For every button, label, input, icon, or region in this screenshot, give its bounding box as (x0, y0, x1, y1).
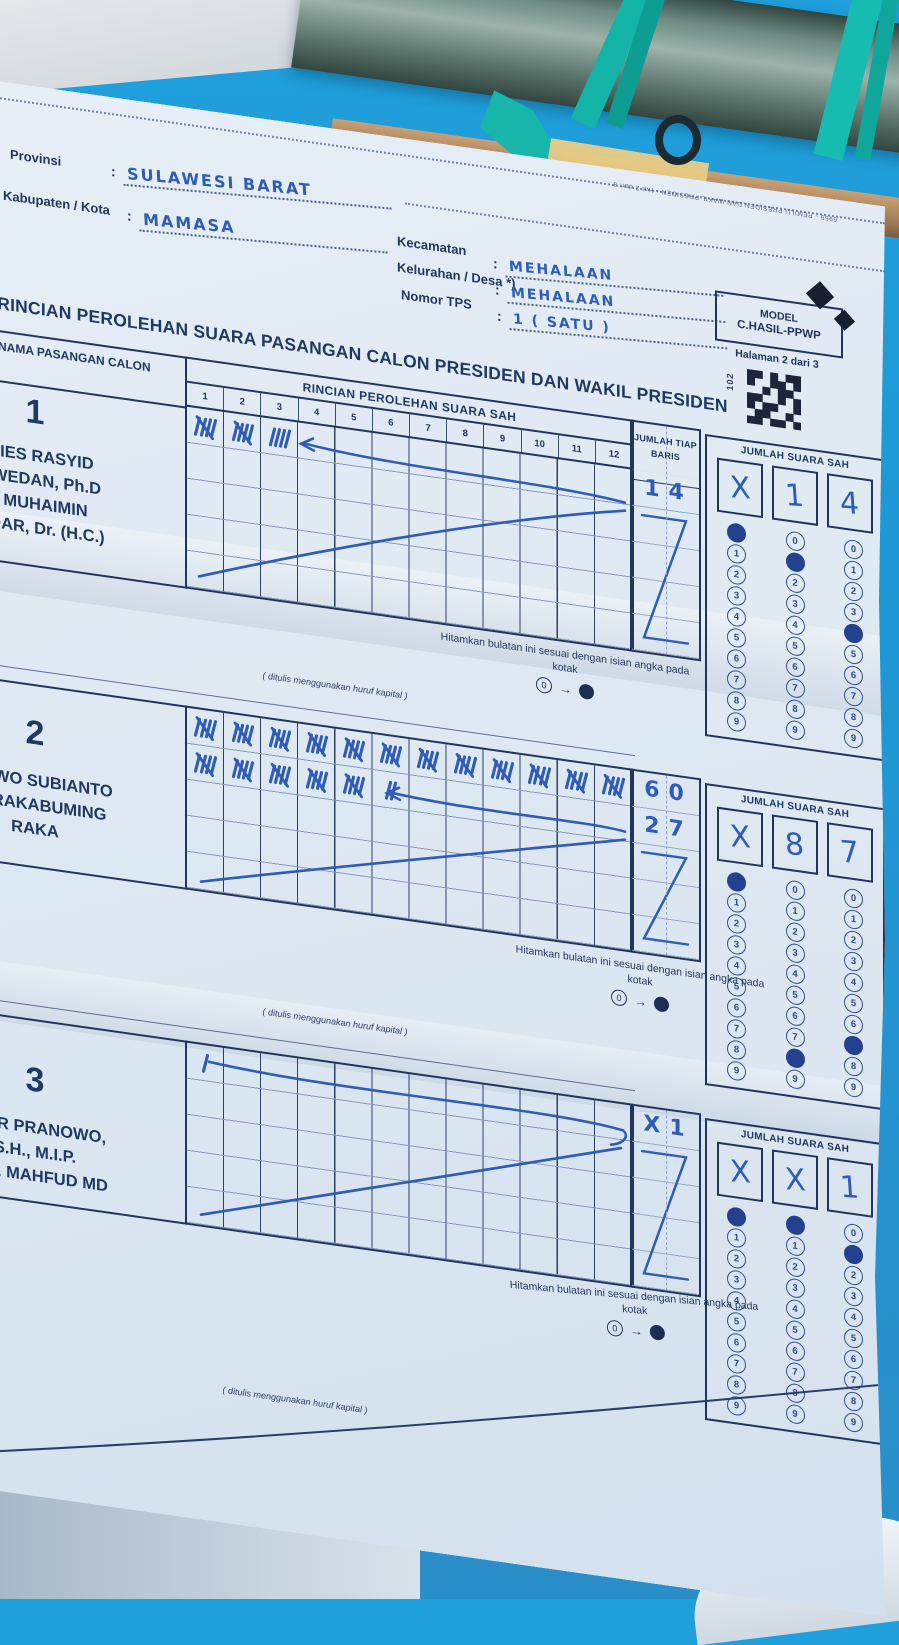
bubble-filled (786, 1047, 805, 1069)
candidate-cell: 2 ABOWO SUBIANTO AN RAKABUMING RAKA (0, 663, 187, 890)
bubble: 8 (786, 698, 805, 720)
bubble: 3 (786, 1277, 805, 1299)
bubble: 0 (844, 1223, 863, 1245)
tally-form-sheet: 6959 - PEMILU PRESIDEN DAN WAKIL PRESIDE… (0, 65, 885, 1616)
bubble: 0 (786, 879, 805, 901)
bubble: 4 (844, 972, 863, 994)
arrow-icon: → (629, 1322, 643, 1338)
field-value-kabupaten: MAMASA (139, 209, 388, 253)
bubble: 1 (844, 909, 863, 931)
caps-note: ( ditulis menggunakan huruf kapital ) (185, 995, 485, 1047)
bubble: 6 (786, 1340, 805, 1362)
bubble: 3 (786, 593, 805, 615)
bubble: 0 (786, 530, 805, 552)
bubble: 9 (844, 728, 863, 750)
field-value-provinsi: SULAWESI BARAT (123, 164, 392, 210)
bubble: 4 (727, 606, 746, 628)
candidate-cell: NOMOR DAN NAMA PASANGAN CALON 1 ANIES RA… (0, 314, 187, 589)
bubble: 8 (844, 1056, 863, 1078)
bubble: 9 (844, 1412, 863, 1434)
bubble: 2 (727, 1248, 746, 1270)
candidate-section-1: NOMOR DAN NAMA PASANGAN CALON 1 ANIES RA… (0, 314, 697, 657)
bubble: 7 (786, 677, 805, 699)
bubble: 8 (786, 1382, 805, 1404)
bubble: 2 (844, 581, 863, 603)
total-digit-box: X (717, 807, 763, 868)
bubble: 9 (786, 719, 805, 741)
bubble: 4 (786, 614, 805, 636)
bubble: 8 (844, 707, 863, 729)
colon: : (127, 207, 132, 224)
bubble: 9 (786, 1403, 805, 1425)
bubble: 5 (786, 984, 805, 1006)
bubble-filled (844, 1035, 863, 1057)
bubble: 7 (786, 1026, 805, 1048)
bubble: 8 (727, 1039, 746, 1061)
bubble: 5 (727, 627, 746, 649)
bubble: 3 (727, 585, 746, 607)
caps-note: ( ditulis menggunakan huruf kapital ) (145, 1374, 445, 1426)
bubble: 3 (786, 942, 805, 964)
filled-bubble-icon (579, 683, 594, 700)
candidate-number: 2 (0, 693, 185, 774)
row-total-column: JUMLAH TIAP BARIS 14 (630, 419, 701, 661)
candidate-section-3: 3 NJAR PRANOWO, S.H., M.I.P. H. M. MAHFU… (0, 998, 697, 1293)
arrow-icon: → (559, 680, 572, 697)
arrow-icon: → (634, 993, 647, 1010)
bubble: 6 (844, 665, 863, 687)
empty-bubble-icon: 0 (611, 989, 627, 1007)
bubble-filled (786, 551, 805, 573)
total-digit-box: X (717, 458, 763, 519)
bubble: 2 (727, 913, 746, 935)
bubble: 2 (786, 572, 805, 594)
bubble: 2 (786, 1256, 805, 1278)
bubble-filled (727, 871, 746, 893)
row-total-column: 6027 (630, 768, 701, 962)
field-label-kecamatan: Kecamatan (397, 233, 466, 258)
bubble: 1 (786, 1235, 805, 1257)
bubble: 2 (786, 921, 805, 943)
bubble: 3 (844, 602, 863, 624)
grommet-ring-icon (655, 115, 701, 165)
field-label-kabupaten: Kabupaten / Kota (3, 188, 110, 218)
crossout-zigzag (632, 1106, 699, 1295)
bubble: 3 (727, 1269, 746, 1291)
bubble: 6 (786, 656, 805, 678)
bubble: 9 (727, 711, 746, 733)
bubble: 4 (844, 1307, 863, 1329)
bubble: 5 (844, 993, 863, 1015)
bubble: 9 (844, 1077, 863, 1099)
bubble: 9 (727, 1395, 746, 1417)
bubble: 6 (786, 1005, 805, 1027)
bubble: 5 (844, 644, 863, 666)
bubble-filled (844, 1244, 863, 1266)
bubble: 3 (844, 1286, 863, 1308)
crossout-zigzag (632, 470, 699, 659)
bubble-grid: 001122233344555666777888999 (707, 518, 883, 753)
qr-side-number: 102 (725, 372, 735, 391)
bubble: 1 (786, 900, 805, 922)
bubble-filled (844, 623, 863, 645)
field-label-nomor-tps: Nomor TPS (401, 287, 472, 312)
candidate-cell: 3 NJAR PRANOWO, S.H., M.I.P. H. M. MAHFU… (0, 998, 187, 1225)
colon: : (493, 255, 498, 272)
filled-bubble-icon (649, 1324, 665, 1340)
bubble: 1 (727, 892, 746, 914)
valid-votes-panel-3: JUMLAH SUARA SAH XX1 0112223334445556667… (705, 1118, 885, 1445)
valid-votes-panel-2: JUMLAH SUARA SAH X87 0011122233344455566… (705, 783, 885, 1110)
bubble: 2 (844, 1265, 863, 1287)
bubble: 3 (727, 934, 746, 956)
bubble: 7 (844, 686, 863, 708)
colon: : (497, 308, 502, 325)
empty-bubble-icon: 0 (536, 676, 552, 694)
colon: : (495, 281, 500, 298)
bubble: 1 (727, 543, 746, 565)
total-digit-box: 8 (772, 814, 818, 875)
bubble: 5 (844, 1328, 863, 1350)
filled-bubble-icon (654, 996, 669, 1013)
row-total-column: X1 (630, 1103, 701, 1297)
total-digit-box: X (772, 1149, 818, 1210)
bubble: 1 (727, 1227, 746, 1249)
total-digit-box: 4 (827, 473, 873, 534)
bubble: 9 (727, 1060, 746, 1082)
bubble: 8 (727, 1374, 746, 1396)
valid-votes-panel-1: JUMLAH SUARA SAH X14 0011222333445556667… (705, 434, 885, 761)
bubble: 6 (844, 1349, 863, 1371)
bubble: 7 (786, 1361, 805, 1383)
bubble: 7 (727, 1353, 746, 1375)
bubble: 3 (844, 951, 863, 973)
bubble: 4 (786, 1298, 805, 1320)
bubble: 5 (786, 1319, 805, 1341)
bubble: 6 (844, 1014, 863, 1036)
bubble-filled (727, 522, 746, 544)
bubble: 7 (844, 1370, 863, 1392)
crossout-zigzag (632, 771, 699, 960)
bubble: 2 (727, 564, 746, 586)
bubble: 8 (727, 690, 746, 712)
bubble: 2 (844, 930, 863, 952)
bubble: 9 (786, 1068, 805, 1090)
bubble: 6 (727, 648, 746, 670)
empty-bubble-icon: 0 (606, 1320, 623, 1338)
field-label-provinsi: Provinsi (10, 147, 61, 169)
bubble-filled (727, 1206, 746, 1228)
total-digit-box: X (717, 1142, 763, 1203)
total-digit-box: 1 (827, 1157, 873, 1218)
bubble: 8 (844, 1391, 863, 1413)
total-digit-box: 7 (827, 822, 873, 883)
total-digit-box: 1 (772, 465, 818, 526)
bubble: 0 (844, 888, 863, 910)
candidate-number: 3 (0, 1040, 185, 1121)
bubble: 5 (786, 635, 805, 657)
colon: : (111, 163, 116, 180)
bubble-filled (786, 1214, 805, 1236)
crossout-strokes (185, 705, 630, 948)
bubble: 0 (844, 539, 863, 561)
bubble: 1 (844, 560, 863, 582)
bubble: 7 (727, 669, 746, 691)
candidate-section-2: 2 ABOWO SUBIANTO AN RAKABUMING RAKA 6027 (0, 663, 697, 958)
crossout-strokes (185, 1040, 630, 1283)
bubble: 4 (786, 963, 805, 985)
